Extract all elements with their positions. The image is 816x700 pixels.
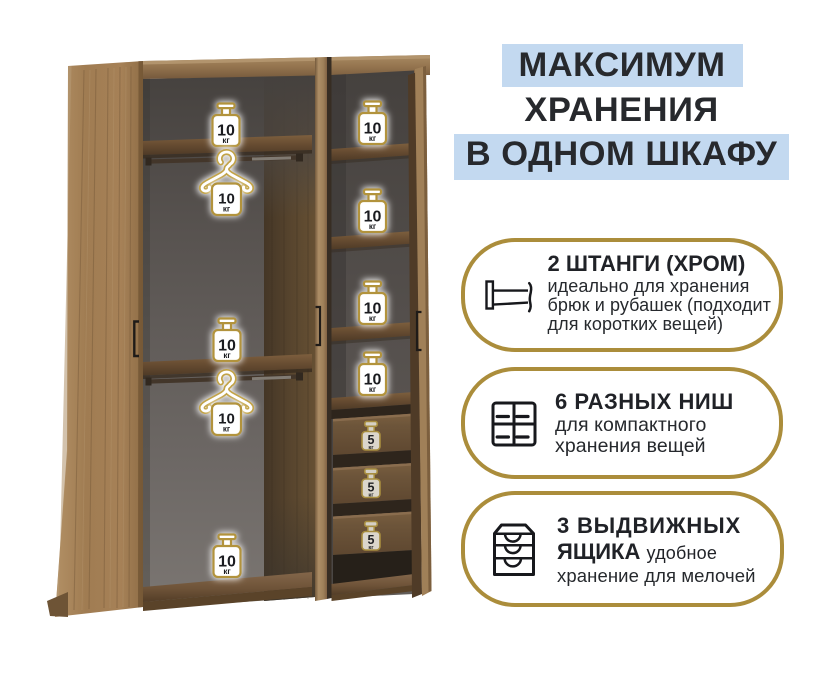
svg-text:кг: кг xyxy=(368,545,374,551)
svg-text:кг: кг xyxy=(223,205,231,214)
svg-text:кг: кг xyxy=(369,222,377,231)
svg-text:кг: кг xyxy=(369,134,377,143)
svg-text:кг: кг xyxy=(222,136,230,145)
svg-text:кг: кг xyxy=(368,445,374,451)
svg-text:кг: кг xyxy=(223,351,231,360)
svg-text:кг: кг xyxy=(223,567,231,576)
svg-text:кг: кг xyxy=(369,314,377,323)
svg-text:кг: кг xyxy=(369,385,377,394)
svg-text:кг: кг xyxy=(368,493,374,499)
svg-text:кг: кг xyxy=(223,425,231,434)
